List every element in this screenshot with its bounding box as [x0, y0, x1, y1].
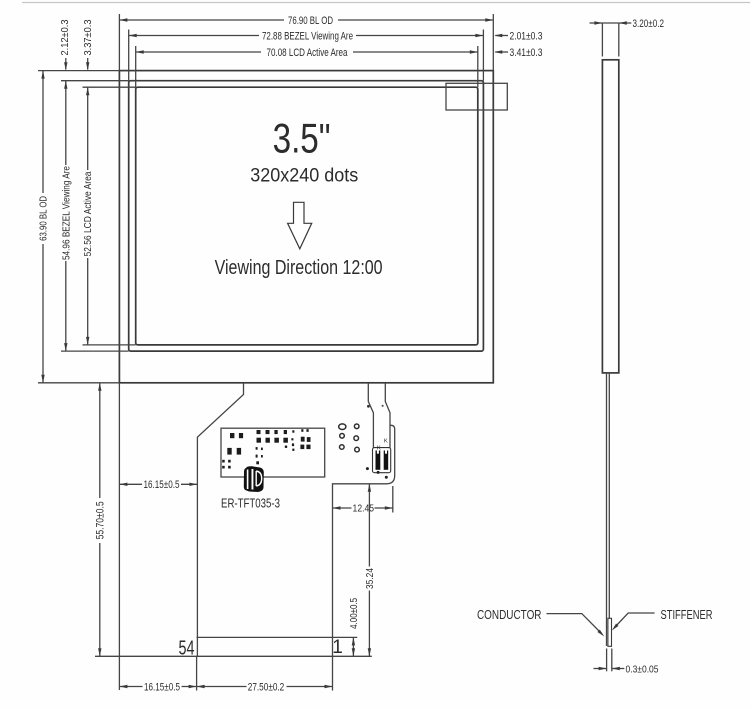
svg-text:K: K	[377, 446, 381, 452]
svg-text:3.37±0.3: 3.37±0.3	[82, 19, 94, 55]
svg-text:63.90 BL OD: 63.90 BL OD	[38, 196, 50, 241]
svg-text:3.41±0.3: 3.41±0.3	[510, 47, 543, 59]
svg-text:3.5": 3.5"	[273, 115, 331, 162]
svg-text:35.24: 35.24	[364, 568, 376, 589]
svg-text:16.15±0.5: 16.15±0.5	[144, 681, 180, 693]
svg-text:52.56 LCD Active Area: 52.56 LCD Active Area	[82, 171, 94, 256]
svg-text:1: 1	[332, 637, 343, 658]
svg-text:CONDUCTOR: CONDUCTOR	[477, 607, 542, 622]
svg-text:54: 54	[179, 638, 195, 660]
svg-text:55.70±0.5: 55.70±0.5	[94, 501, 106, 539]
svg-text:72.88 BEZEL Viewing Are: 72.88 BEZEL Viewing Are	[262, 31, 353, 43]
svg-text:320x240 dots: 320x240 dots	[250, 166, 358, 187]
svg-text:70.08 LCD Active Area: 70.08 LCD Active Area	[267, 47, 349, 59]
svg-text:2.12±0.3: 2.12±0.3	[59, 19, 71, 55]
svg-text:ER-TFT035-3: ER-TFT035-3	[221, 495, 280, 510]
svg-text:16.15±0.5: 16.15±0.5	[144, 479, 180, 491]
svg-text:2.01±0.3: 2.01±0.3	[510, 31, 543, 43]
svg-text:4.00±0.5: 4.00±0.5	[348, 598, 360, 629]
svg-text:54.96 BEZEL Viewing Are: 54.96 BEZEL Viewing Are	[60, 166, 72, 260]
svg-text:27.50±0.2: 27.50±0.2	[248, 681, 285, 693]
svg-text:76.90 BL OD: 76.90 BL OD	[288, 15, 333, 27]
svg-text:STIFFENER: STIFFENER	[661, 607, 713, 622]
svg-text:12.45: 12.45	[353, 503, 375, 515]
svg-text:0.3±0.05: 0.3±0.05	[626, 663, 659, 675]
svg-text:3.20±0.2: 3.20±0.2	[633, 18, 665, 30]
svg-text:Viewing Direction 12:00: Viewing Direction 12:00	[215, 257, 383, 279]
svg-text:K: K	[384, 439, 388, 445]
